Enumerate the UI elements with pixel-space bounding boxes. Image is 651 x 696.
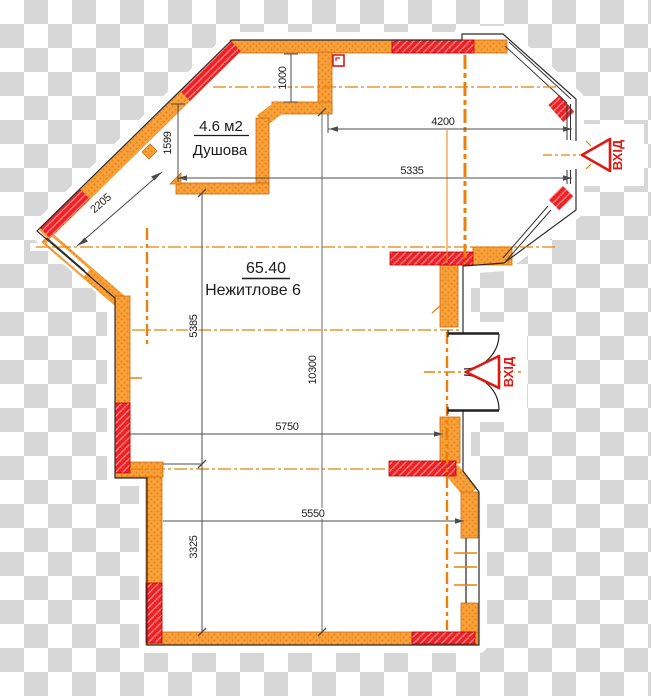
dim-5550: 5550 [301,508,324,520]
dim-3325: 3325 [188,535,200,558]
entrance-label-side: ВХІД [501,356,516,387]
dim-10300: 10300 [307,355,319,384]
shower-area-label: 4.6 м2 [199,118,243,135]
dim-1000: 1000 [277,66,289,89]
main-area-label: 65.40 [246,260,286,277]
dim-5750: 5750 [275,421,298,433]
dim-4200: 4200 [431,116,454,128]
floor-plan-drawing: 4.6 м2 Душова 65.40 Нежитлове 6 4200 533… [0,0,651,696]
shower-name-label: Душова [193,142,248,159]
dim-5335: 5335 [400,165,423,177]
dim-1599: 1599 [162,131,174,154]
main-name-label: Нежитлове 6 [205,282,301,299]
utility-box-icon [333,55,344,66]
floor-plan-canvas: 4.6 м2 Душова 65.40 Нежитлове 6 4200 533… [0,0,651,696]
entrance-label-bay: ВХІД [610,139,625,170]
dim-5385: 5385 [188,314,200,337]
